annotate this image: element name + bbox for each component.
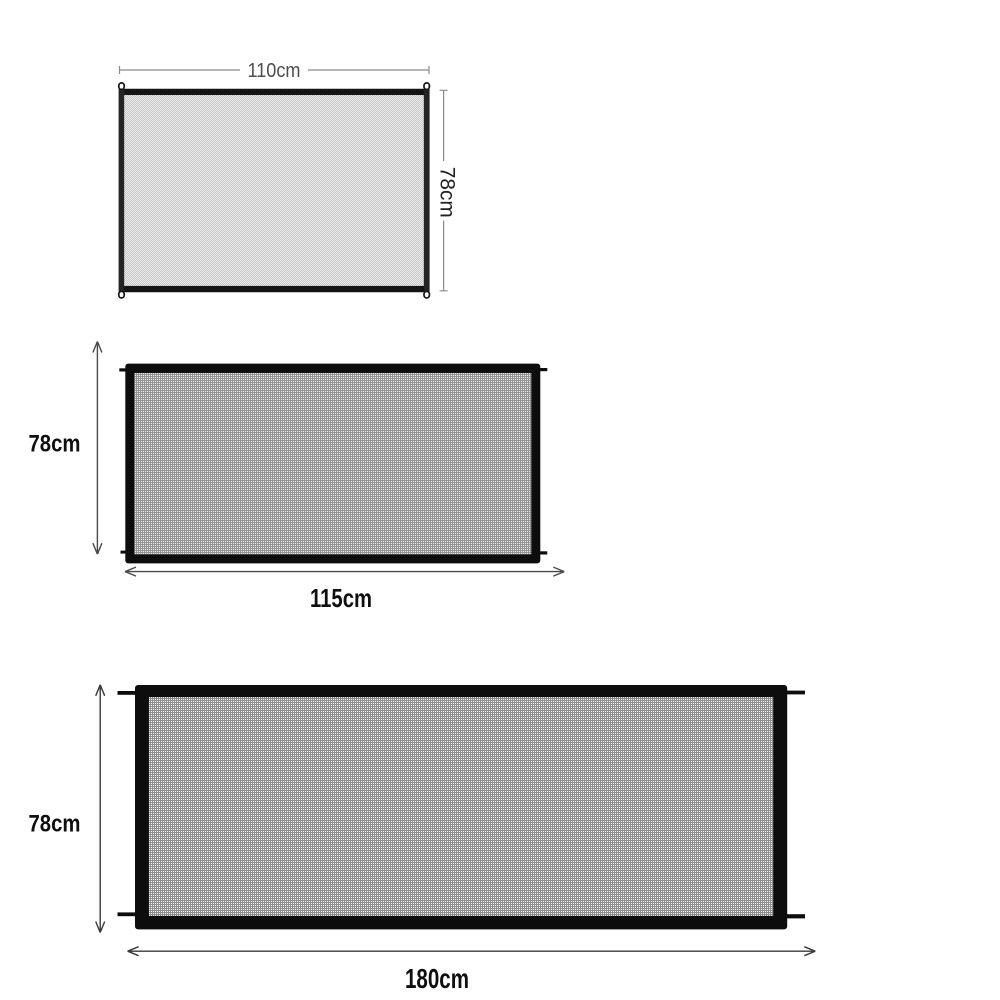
svg-text:115cm: 115cm — [310, 583, 372, 613]
svg-text:78cm: 78cm — [29, 811, 81, 838]
svg-text:78cm: 78cm — [29, 431, 81, 458]
svg-text:110cm: 110cm — [248, 60, 301, 82]
svg-text:78cm: 78cm — [435, 167, 458, 218]
svg-text:180cm: 180cm — [405, 963, 469, 994]
